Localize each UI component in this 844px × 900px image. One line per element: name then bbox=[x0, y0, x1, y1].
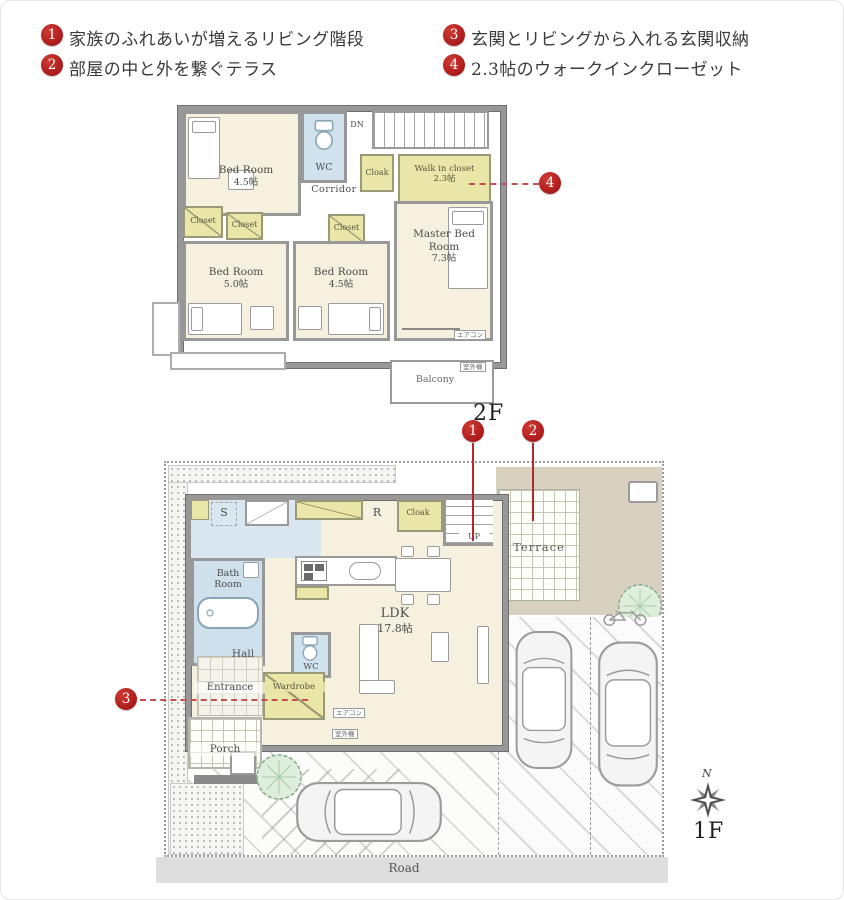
2f-bedroom-s-label: Bed Room4.5帖 bbox=[306, 266, 376, 290]
porch-label: Porch bbox=[190, 743, 260, 756]
2f-dn-label: DN bbox=[344, 120, 370, 130]
feature-4-text: 2.3帖のウォークインクローゼット bbox=[471, 55, 743, 80]
floorplan-page: 1 家族のふれあいが増えるリビング階段 2 部屋の中と外を繋ぐテラス 3 玄関と… bbox=[0, 0, 844, 900]
plan-badge-1: 1 bbox=[462, 420, 484, 442]
sink-icon bbox=[349, 562, 381, 580]
sofa-icon bbox=[359, 680, 395, 694]
wardrobe bbox=[263, 672, 325, 720]
bathtub-icon bbox=[196, 596, 260, 630]
room-size: 4.5帖 bbox=[306, 279, 376, 290]
car-icon bbox=[596, 639, 660, 789]
burner bbox=[304, 573, 313, 580]
room-name: LDK bbox=[381, 606, 410, 621]
room-size: 17.8帖 bbox=[359, 622, 431, 635]
pillow-icon bbox=[369, 307, 381, 331]
burner bbox=[315, 564, 324, 571]
2f-closet-a-label: Closet bbox=[183, 216, 223, 226]
hall-label: Hall bbox=[221, 648, 265, 661]
2f-cloak-label: Cloak bbox=[360, 168, 394, 178]
2f-closet-c-label: Closet bbox=[328, 223, 365, 233]
bathroom-label: Bath Room bbox=[203, 568, 253, 591]
bicycle-icon bbox=[600, 609, 652, 627]
2f-walkin-closet-label: Walk in closet2.3帖 bbox=[400, 164, 489, 184]
room-name: Master Bed Room bbox=[413, 228, 475, 253]
wall-cabinet bbox=[295, 500, 363, 520]
room-name: Walk in closet bbox=[415, 164, 475, 174]
washer-space bbox=[191, 500, 209, 520]
room-size: 5.0帖 bbox=[196, 279, 276, 290]
annotation-line-3 bbox=[140, 699, 308, 701]
dining-table-icon bbox=[395, 558, 451, 592]
car-icon bbox=[294, 779, 444, 845]
1f-outdoor-unit-tag: 室外機 bbox=[332, 729, 358, 739]
room-name: Bed Room bbox=[219, 164, 274, 176]
compass-north-label: N bbox=[702, 767, 712, 780]
curtain-rail-line bbox=[402, 328, 460, 330]
room-name: Bed Room bbox=[314, 266, 369, 278]
2f-stairs-down bbox=[372, 111, 489, 149]
terrace-label: Terrace bbox=[498, 541, 580, 555]
toilet-icon bbox=[300, 635, 320, 662]
2f-eaves-bottom bbox=[170, 352, 286, 370]
base-cabinet bbox=[295, 586, 329, 600]
tv-board-icon bbox=[477, 626, 489, 684]
entrance-label: Entrance bbox=[195, 682, 265, 694]
room-name: Bed Room bbox=[209, 266, 264, 278]
feature-1-badge: 1 bbox=[41, 24, 63, 46]
annotation-line-2 bbox=[532, 443, 534, 521]
annotation-line-1 bbox=[472, 443, 474, 541]
floorplan-2f: Bed Room4.5帖 WC DN Cloak Walk in closet2… bbox=[176, 106, 502, 408]
chair-icon bbox=[401, 594, 414, 605]
2f-bedroom-nw-label: Bed Room4.5帖 bbox=[206, 164, 286, 188]
car-icon bbox=[512, 629, 576, 771]
compass-icon bbox=[689, 781, 727, 819]
room-size: 4.5帖 bbox=[206, 177, 286, 188]
pillow-icon bbox=[192, 121, 216, 133]
up-label: UP bbox=[459, 532, 489, 542]
wardrobe-label: Wardrobe bbox=[263, 682, 325, 692]
1f-aircon-tag: エアコン bbox=[333, 708, 365, 718]
2f-bedroom-sw-label: Bed Room5.0帖 bbox=[196, 266, 276, 290]
2f-wc-label: WC bbox=[304, 162, 344, 173]
parking-divider bbox=[590, 617, 591, 855]
annotation-line-4 bbox=[469, 183, 539, 185]
feature-2-badge: 2 bbox=[41, 54, 63, 76]
pillow-icon bbox=[452, 211, 484, 225]
planting-bed bbox=[170, 783, 244, 855]
feature-1-text: 家族のふれあいが増えるリビング階段 bbox=[69, 25, 364, 50]
2f-eaves-left bbox=[152, 302, 180, 356]
ldk-label: LDK17.8帖 bbox=[359, 606, 431, 635]
feature-4-badge: 4 bbox=[443, 54, 465, 76]
burner bbox=[304, 564, 313, 571]
1f-cloak-label: Cloak bbox=[397, 508, 439, 518]
2f-closet-b-label: Closet bbox=[226, 220, 263, 230]
plan-badge-2: 2 bbox=[522, 420, 544, 442]
2f-master-label: Master Bed Room7.3帖 bbox=[404, 228, 484, 265]
room-size: 7.3帖 bbox=[404, 253, 484, 264]
chair-icon bbox=[427, 594, 440, 605]
feature-3-badge: 3 bbox=[443, 24, 465, 46]
road-label: Road bbox=[304, 861, 504, 875]
floor-1f-label: 1F bbox=[693, 819, 724, 844]
toilet-icon bbox=[312, 118, 336, 152]
plan-badge-4: 4 bbox=[539, 172, 561, 194]
desk-icon bbox=[250, 306, 274, 330]
side-table-icon bbox=[431, 632, 449, 662]
chair-icon bbox=[401, 546, 414, 557]
feature-2-text: 部屋の中と外を繋ぐテラス bbox=[69, 55, 277, 80]
house-1f: S Bath Room R Cloak UP bbox=[186, 495, 508, 751]
feature-3-text: 玄関とリビングから入れる玄関収納 bbox=[471, 25, 749, 50]
desk-icon bbox=[298, 306, 322, 330]
garden-sink bbox=[628, 481, 658, 503]
chair-icon bbox=[427, 546, 440, 557]
washbasin-counter bbox=[245, 500, 289, 526]
pillow-icon bbox=[191, 307, 203, 331]
2f-outdoor-unit-tag: 室外機 bbox=[460, 362, 486, 372]
refrigerator-label: R bbox=[367, 506, 387, 519]
floorplan-1f: Terrace S Bath Room bbox=[164, 459, 668, 889]
s-room-label: S bbox=[211, 506, 237, 519]
gravel-strip-top bbox=[168, 465, 396, 483]
1f-wc-label: WC bbox=[295, 662, 327, 672]
2f-aircon-tag: エアコン bbox=[454, 330, 486, 340]
2f-corridor-label: Corridor bbox=[304, 184, 364, 195]
plan-badge-3: 3 bbox=[115, 688, 137, 710]
2f-balcony-label: Balcony bbox=[400, 374, 470, 385]
stove-icon bbox=[301, 561, 327, 581]
